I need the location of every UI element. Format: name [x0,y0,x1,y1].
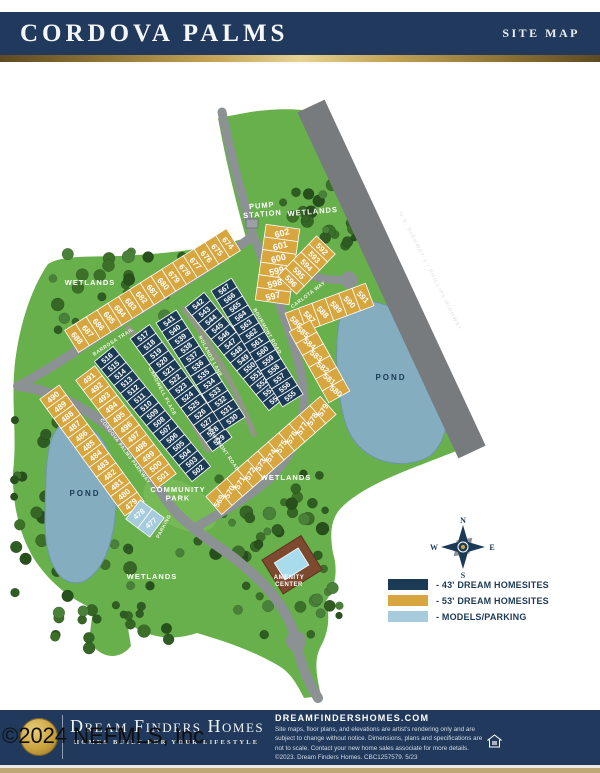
disclaimer-text: Site maps, floor plans, and elevations a… [275,725,483,763]
legend: - 43' DREAM HOMESITES - 53' DREAM HOMESI… [388,579,549,627]
legend-swatch-navy [388,579,428,590]
legend-label: - 53' DREAM HOMESITES [436,596,549,606]
legend-label: - 43' DREAM HOMESITES [436,580,549,590]
legend-item-53: - 53' DREAM HOMESITES [388,595,549,606]
compass-label: W [430,543,438,552]
area-label: WETLANDS [127,572,178,581]
footer-tan-strip [0,768,600,773]
footer-right: DREAMFINDERSHOMES.COM Site maps, floor p… [275,713,483,763]
gold-divider [0,55,600,62]
pond-label: POND [375,373,406,382]
area-label: WETLANDS [65,278,116,287]
compass-label: E [489,543,494,552]
road-flare [286,631,306,651]
pond-label: POND [69,489,100,498]
site-map: 5165155145135125115105095085075065055045… [0,0,600,773]
page-title: CORDOVA PALMS [0,20,288,48]
area-label: WETLANDS [261,473,312,482]
legend-item-43: - 43' DREAM HOMESITES [388,579,549,590]
pump-station-structure [246,219,258,228]
legend-swatch-gold [388,595,428,606]
compass-label: N [460,516,466,525]
sitemap-label: SITE MAP [502,26,600,41]
legend-swatch-blue [388,611,428,622]
equal-housing-icon [487,734,502,749]
compass-rose [441,525,485,569]
website-url: DREAMFINDERSHOMES.COM [275,713,483,723]
cul-de-sac [341,272,358,289]
mls-watermark: ©2024 NEFMLS, Inc [2,723,204,749]
amenity-label: AMENITYCENTER [274,575,305,588]
header-bar: CORDOVA PALMS SITE MAP [0,12,600,55]
legend-label: - MODELS/PARKING [436,612,527,622]
legend-item-models: - MODELS/PARKING [388,611,549,622]
